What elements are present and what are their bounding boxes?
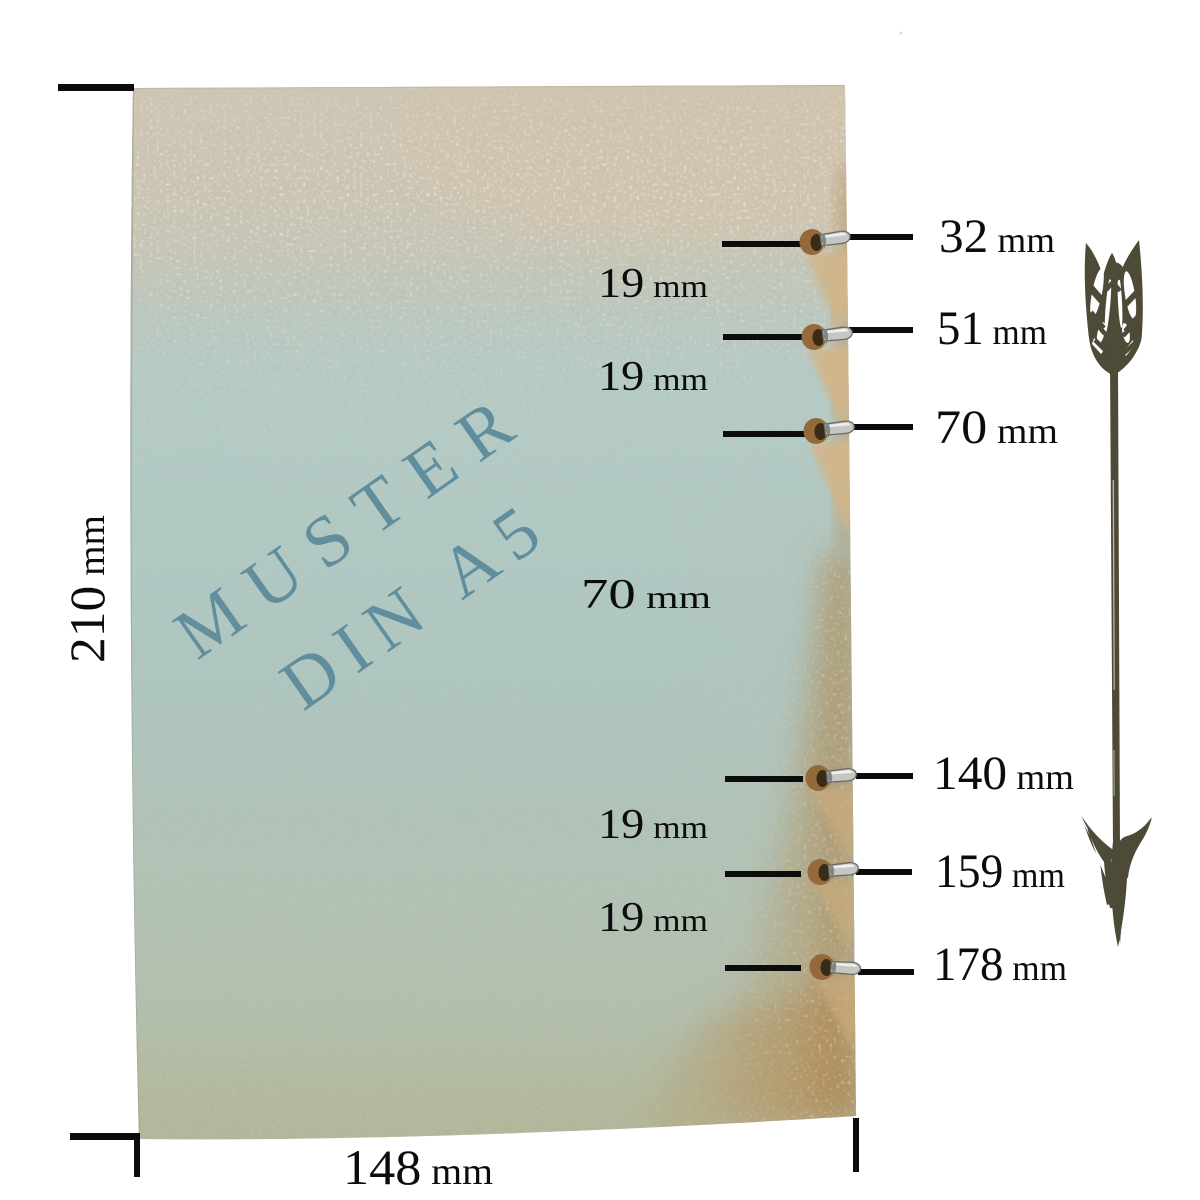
svg-text:148 mm: 148 mm bbox=[343, 1139, 493, 1195]
svg-text:19 mm: 19 mm bbox=[598, 354, 708, 400]
svg-text:210 mm: 210 mm bbox=[59, 515, 115, 663]
svg-text:70 mm: 70 mm bbox=[935, 401, 1058, 454]
svg-text:51 mm: 51 mm bbox=[937, 302, 1047, 355]
svg-text:140 mm: 140 mm bbox=[933, 747, 1074, 800]
svg-text:70 mm: 70 mm bbox=[581, 572, 711, 618]
svg-text:178 mm: 178 mm bbox=[933, 938, 1067, 991]
svg-text:19 mm: 19 mm bbox=[598, 802, 708, 848]
svg-text:19 mm: 19 mm bbox=[598, 261, 708, 307]
svg-text:32 mm: 32 mm bbox=[939, 210, 1055, 263]
svg-text:159 mm: 159 mm bbox=[935, 845, 1065, 898]
svg-text:19 mm: 19 mm bbox=[598, 895, 708, 941]
